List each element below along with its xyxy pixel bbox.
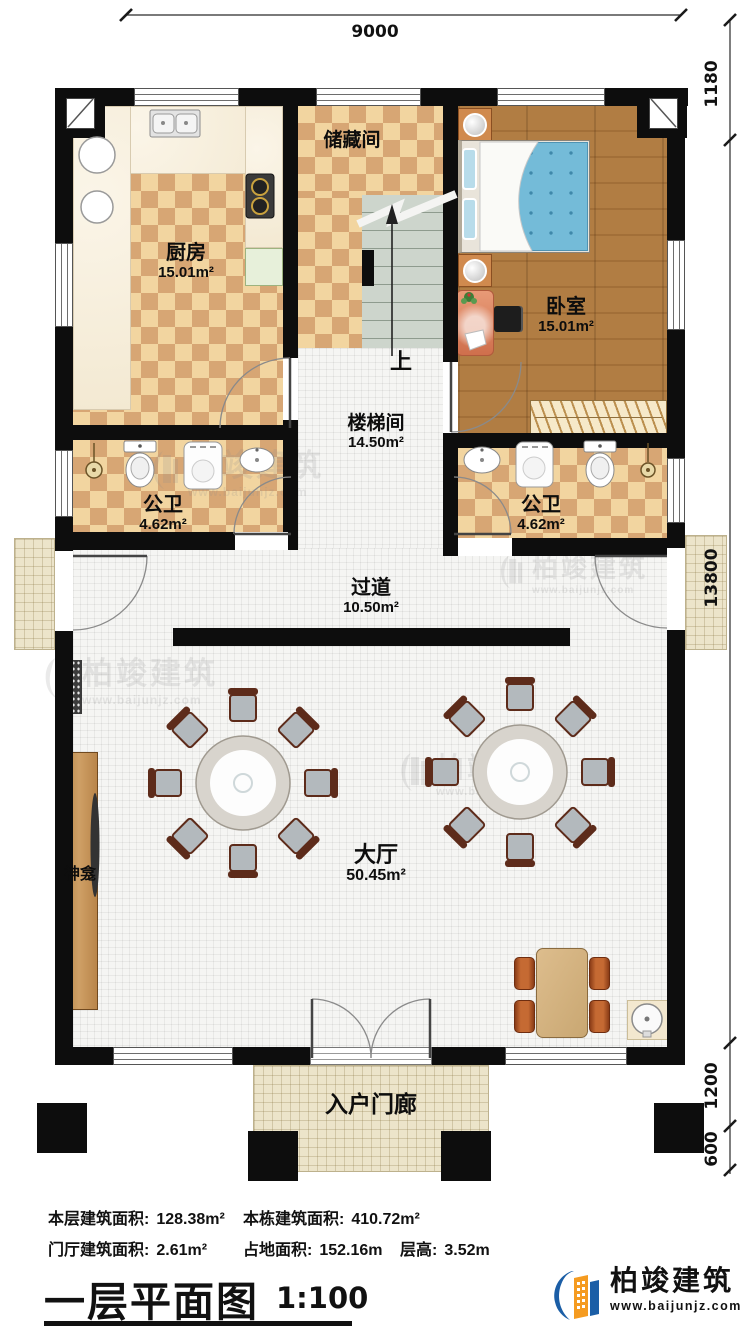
stat-value: 128.38m²	[156, 1211, 225, 1228]
room-label-porch: 入户门廊	[325, 1092, 417, 1117]
room-label-kitchen: 厨房 15.01m²	[158, 243, 214, 281]
room-name: 公卫	[139, 495, 187, 517]
plan-overlay	[0, 0, 750, 1337]
brand-text: 柏竣建筑 www.baijunjz.com	[610, 1266, 742, 1313]
room-area: 4.62m²	[139, 517, 187, 533]
title-underline	[44, 1321, 352, 1326]
side-door-right-swing	[595, 556, 667, 628]
toilet	[584, 441, 616, 487]
washing-machine	[184, 442, 222, 489]
stat-porch-area: 门厅建筑面积:2.61m²	[48, 1236, 207, 1260]
stat-value: 3.52m	[444, 1242, 489, 1259]
room-label-bath-right: 公卫 4.62m²	[517, 495, 565, 533]
room-area: 4.62m²	[517, 517, 565, 533]
round-table-set	[148, 688, 338, 878]
floor-plan-page: 柏竣建筑www.baijunjz.com 柏竣建筑www.baijunjz.co…	[0, 0, 750, 1337]
dimension-right-bottom: 600	[702, 1131, 722, 1167]
bath-right-door-swing	[454, 477, 511, 534]
stat-label: 层高:	[400, 1242, 437, 1259]
dimension-right-middle: 13800	[702, 548, 722, 607]
room-name: 公卫	[517, 495, 565, 517]
kitchen-door-swing	[220, 358, 290, 428]
stat-label: 占地面积:	[243, 1242, 312, 1259]
brand-logo-icon	[548, 1266, 604, 1324]
room-name: 大厅	[346, 843, 406, 867]
dimension-right-top: 1180	[702, 60, 722, 107]
page-title: 一层平面图	[44, 1268, 259, 1328]
room-label-stairwell: 楼梯间 14.50m²	[347, 414, 404, 451]
brand-logo: 柏竣建筑 www.baijunjz.com	[548, 1266, 742, 1324]
room-name: 神龛	[64, 866, 96, 883]
room-area: 15.01m²	[538, 319, 594, 335]
room-name: 楼梯间	[347, 414, 404, 435]
stat-land-area: 占地面积:152.16m	[243, 1236, 383, 1260]
room-name: 过道	[343, 578, 399, 600]
stat-label: 本栋建筑面积:	[243, 1211, 344, 1228]
stat-label: 本层建筑面积:	[48, 1211, 149, 1228]
stat-building-area: 本栋建筑面积:410.72m²	[243, 1205, 420, 1229]
stat-floor-area: 本层建筑面积:128.38m²	[48, 1205, 225, 1229]
stat-value: 2.61m²	[156, 1242, 207, 1259]
stair-direction-arrow	[386, 204, 398, 356]
room-label-hall: 大厅 50.45m²	[346, 843, 406, 884]
corner-sink	[632, 1004, 662, 1037]
room-label-shrine: 神龛	[64, 866, 96, 883]
bedroom-door-swing	[451, 362, 521, 432]
room-area: 15.01m²	[158, 265, 214, 281]
room-name: 卧室	[538, 297, 594, 319]
vase	[465, 330, 486, 350]
round-table-set	[425, 677, 615, 867]
plant-icon	[461, 292, 477, 304]
toilet	[124, 441, 156, 487]
room-area: 10.50m²	[343, 600, 399, 616]
side-door-left-swing	[73, 556, 147, 630]
dimension-lines	[126, 15, 730, 1174]
bath-left-door-swing	[234, 477, 291, 534]
brand-name: 柏竣建筑	[610, 1266, 742, 1297]
dimension-ticks	[120, 9, 736, 1176]
room-label-bedroom: 卧室 15.01m²	[538, 297, 594, 335]
stat-value: 152.16m	[319, 1242, 382, 1259]
room-name: 储藏间	[323, 131, 380, 152]
bathroom-sink	[464, 447, 500, 473]
room-label-corridor: 过道 10.50m²	[343, 578, 399, 616]
stat-height: 层高:3.52m	[400, 1236, 490, 1260]
entry-door-swing	[371, 999, 430, 1058]
kitchen-basins	[79, 137, 115, 223]
stove	[246, 174, 274, 218]
stat-label: 门厅建筑面积:	[48, 1242, 149, 1259]
entry-door-swing	[312, 999, 371, 1058]
room-label-bath-left: 公卫 4.62m²	[139, 495, 187, 533]
room-label-storage: 储藏间	[323, 131, 380, 152]
kitchen-sink	[150, 110, 200, 137]
dimension-top: 9000	[340, 22, 410, 42]
shower-head	[641, 443, 655, 477]
bathroom-sink	[240, 448, 274, 472]
washing-machine	[516, 442, 553, 487]
stat-value: 410.72m²	[351, 1211, 420, 1228]
room-area: 50.45m²	[346, 867, 406, 884]
shower-head	[86, 443, 102, 478]
room-name: 入户门廊	[325, 1092, 417, 1117]
room-name: 厨房	[158, 243, 214, 265]
stairs-up-label: 上	[390, 350, 412, 374]
stair-break-line	[358, 194, 456, 224]
room-name: 上	[390, 350, 412, 374]
bed-duvet	[480, 142, 538, 251]
room-area: 14.50m²	[347, 435, 404, 451]
dimension-right-lower: 1200	[702, 1062, 722, 1109]
title-scale: 1:100	[276, 1281, 368, 1315]
round-table-top	[210, 750, 276, 816]
brand-url: www.baijunjz.com	[610, 1299, 742, 1313]
round-table-top	[487, 739, 553, 805]
